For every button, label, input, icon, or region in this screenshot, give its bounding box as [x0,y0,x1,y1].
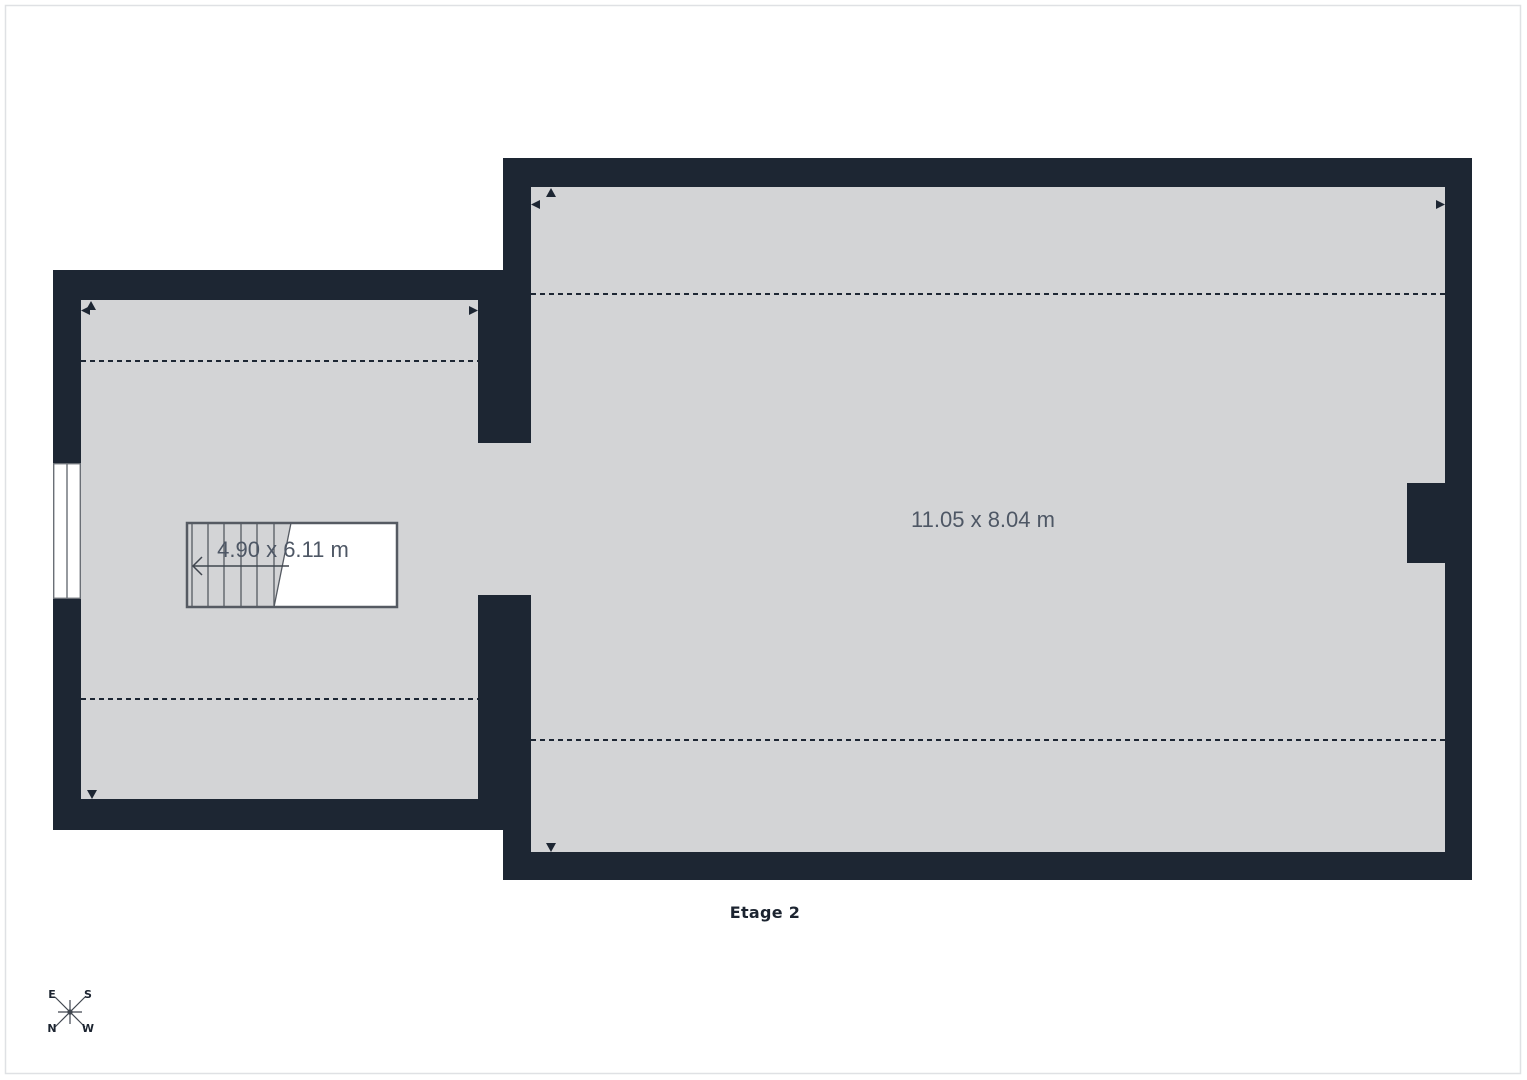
wall-segment-left-building-bottom [53,799,503,830]
wall-segment-chimney [1407,483,1448,563]
floorplan-canvas: 4.90 x 6.11 m 11.05 x 8.04 m Etage 2 E S… [0,0,1527,1080]
wall-segment-left-building-top [53,270,503,300]
wall-segment-right-building-bottom [503,852,1472,880]
wall-segment-right-building-top [503,158,1472,187]
compass-label-north: N [47,1022,56,1035]
staircase [187,523,397,607]
wall-segment-divider-upper-right [503,158,531,443]
wall-segment-divider-lower-left [478,595,503,830]
floor-label: Etage 2 [730,903,800,922]
left-room-dimension-label: 4.90 x 6.11 m [217,537,349,562]
compass-label-west: W [82,1022,94,1035]
staircase-treads-area [187,523,291,607]
wall-segment-divider-lower-right [503,595,531,880]
floorplan-page: 4.90 x 6.11 m 11.05 x 8.04 m Etage 2 E S… [0,0,1527,1080]
wall-segment-right-building-right [1445,158,1472,880]
passage-floor [478,443,531,595]
window [53,463,81,599]
compass-rose-icon: E S N W [47,988,94,1035]
wall-segment-divider-upper-left [478,270,503,443]
right-room-dimension-label: 11.05 x 8.04 m [911,507,1055,532]
compass-label-east: E [48,988,56,1001]
compass-label-south: S [84,988,92,1001]
